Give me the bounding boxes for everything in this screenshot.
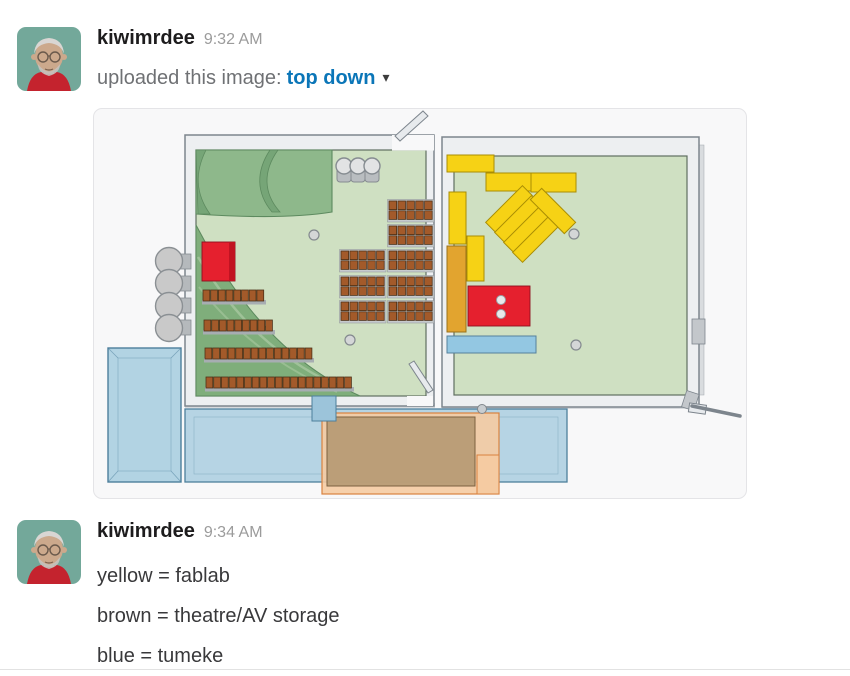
avatar[interactable]: [17, 520, 81, 584]
legend-line-brown: brown = theatre/AV storage: [97, 596, 340, 636]
floorplan-svg: [94, 109, 746, 498]
column: [309, 230, 319, 240]
username[interactable]: kiwimrdee: [97, 520, 195, 542]
slack-message-pane: kiwimrdee9:32 AM uploaded this image:top…: [0, 0, 850, 676]
legend-line-blue: blue = tumeke: [97, 636, 340, 676]
blue-bench: [447, 336, 536, 353]
open-door-fablab: [682, 391, 740, 416]
upload-line: uploaded this image:top down▾: [97, 67, 389, 90]
username[interactable]: kiwimrdee: [97, 27, 195, 49]
column: [571, 340, 581, 350]
message-header: kiwimrdee9:34 AM: [97, 520, 263, 543]
storage-step: [477, 455, 499, 494]
blue-connector: [312, 396, 336, 421]
column: [345, 335, 355, 345]
message-body: yellow = fablab brown = theatre/AV stora…: [97, 556, 340, 676]
seat-row: [206, 377, 351, 388]
upload-action-text: uploaded this image:: [97, 67, 282, 89]
image-attachment[interactable]: [93, 108, 747, 499]
storage-annex: [322, 413, 499, 494]
fablab-room: [442, 137, 740, 416]
divider: [0, 669, 850, 670]
file-link[interactable]: top down: [287, 67, 376, 89]
column: [569, 229, 579, 239]
legend-line-yellow: yellow = fablab: [97, 556, 340, 596]
seat-row: [204, 320, 272, 331]
file-menu-caret-icon[interactable]: ▾: [382, 69, 389, 86]
avatar-photo: [17, 27, 81, 91]
red-box-fablab: [468, 286, 530, 326]
avatar[interactable]: [17, 27, 81, 91]
message-header: kiwimrdee9:32 AM: [97, 27, 263, 50]
avatar-photo: [17, 520, 81, 584]
door-hinge: [478, 405, 487, 414]
timestamp[interactable]: 9:34 AM: [204, 524, 263, 541]
theatre-room: [185, 111, 434, 406]
cylinders: [336, 158, 380, 182]
orange-bench: [447, 246, 466, 332]
storage-brown-block: [327, 417, 475, 486]
timestamp[interactable]: 9:32 AM: [204, 31, 263, 48]
